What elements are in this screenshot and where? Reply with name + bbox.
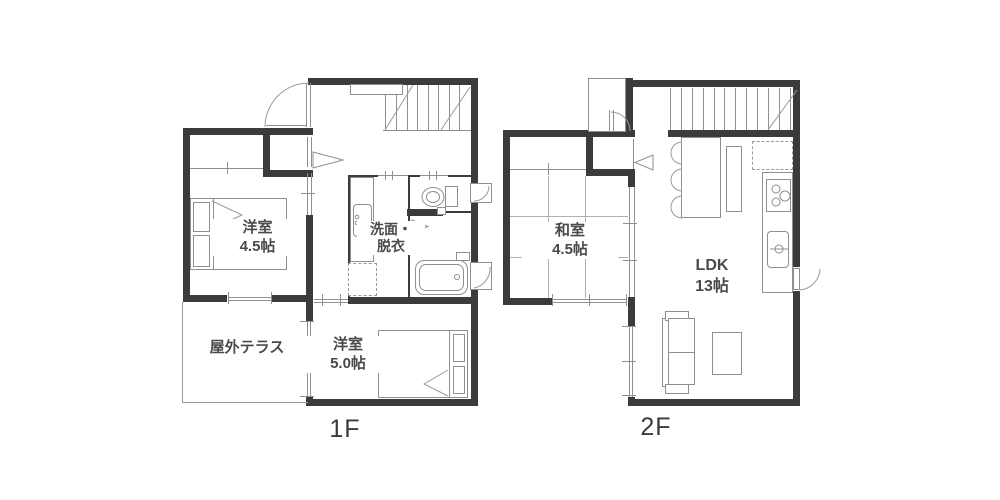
door-swing-triangle: [635, 155, 653, 170]
washbasin-faucet: [355, 215, 359, 219]
room-label-washroom: 洗面・ 脱衣: [357, 221, 425, 255]
stairs-break-line: [385, 85, 413, 130]
plan-curves: [0, 0, 1000, 500]
stairs-break-line: [441, 87, 470, 130]
bed-fold-line: [424, 370, 448, 396]
room-label-bedroom-small: 洋室 4.5帖: [210, 219, 305, 256]
floor-label-2f: 2F: [626, 413, 686, 442]
room-name: 洋室: [210, 219, 305, 238]
room-label-bedroom-large: 洋室 5.0帖: [300, 336, 396, 373]
room-name: 洗面・: [357, 221, 425, 238]
chair-icon: [671, 169, 682, 191]
floor-label-1f: 1F: [315, 415, 375, 444]
room-size: 5.0帖: [300, 355, 396, 374]
room-label-terrace: 屋外テラス: [197, 339, 297, 356]
door-swing-arc: [611, 112, 630, 131]
chair-icon: [671, 142, 682, 164]
room-size: 4.5帖: [210, 238, 305, 257]
door-swing-arc: [800, 269, 820, 290]
room-name: 屋外テラス: [197, 339, 297, 356]
toilet-bowl-inner: [427, 192, 440, 203]
room-name: LDK: [664, 255, 760, 276]
stove-burner: [772, 185, 780, 193]
room-name: 脱衣: [357, 238, 425, 255]
room-name: 和室: [522, 222, 618, 241]
stairs-break-line: [768, 90, 797, 130]
stove-burner: [772, 198, 780, 206]
room-label-ldk: LDK 13帖: [664, 255, 760, 297]
chair-icon: [671, 196, 682, 218]
window-arc: [474, 267, 490, 288]
stove-burner: [780, 191, 790, 201]
entrance-door-arc: [265, 83, 309, 127]
window-arc: [474, 186, 489, 201]
room-size: 13帖: [664, 276, 760, 297]
room-size: 4.5帖: [522, 241, 618, 260]
bathtub-drain: [455, 275, 460, 280]
room-name: 洋室: [300, 336, 396, 355]
door-swing-triangle: [313, 152, 343, 168]
room-label-japanese-room: 和室 4.5帖: [522, 222, 618, 259]
floor-plan-canvas: 洋室 4.5帖 洗面・ 脱衣 屋外テラス 洋室 5.0帖 和室 4.5帖 LDK…: [0, 0, 1000, 500]
